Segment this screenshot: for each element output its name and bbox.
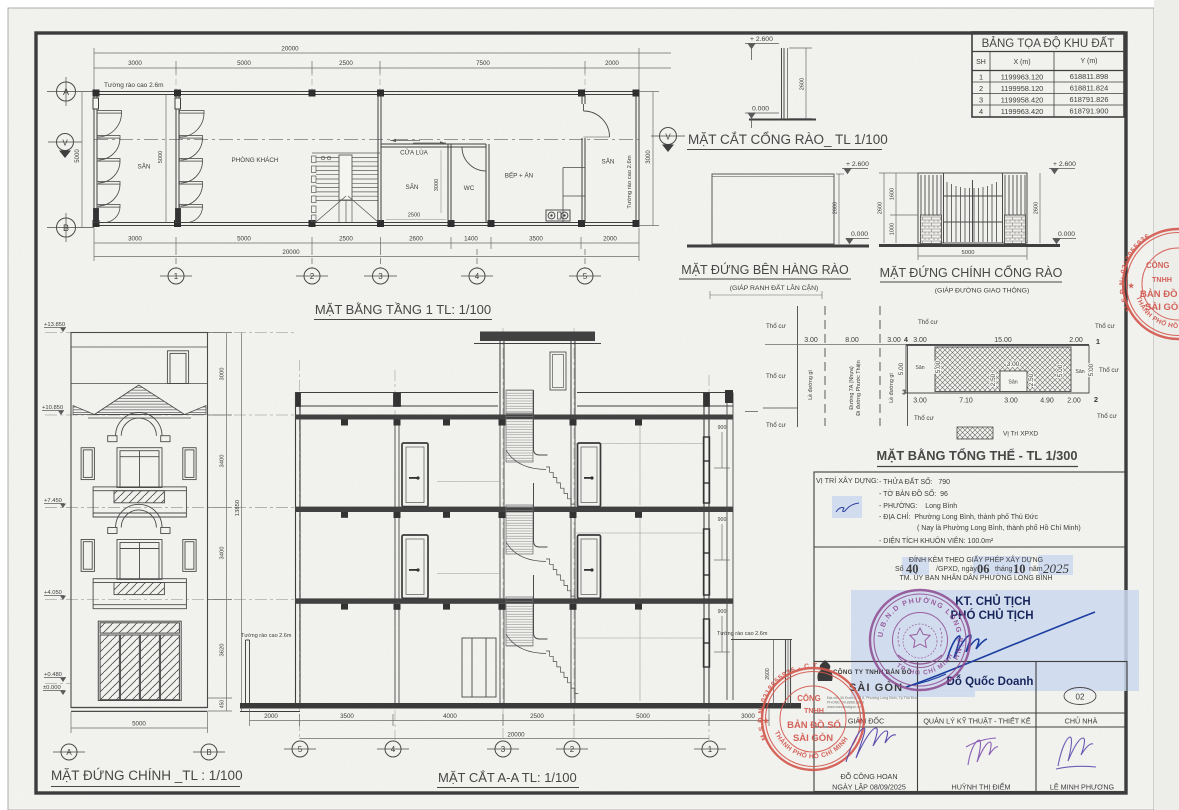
svg-text:20000: 20000 bbox=[281, 46, 299, 53]
svg-text:5.00: 5.00 bbox=[1088, 363, 1095, 376]
svg-text:5.00: 5.00 bbox=[935, 360, 942, 373]
svg-text:TNHH: TNHH bbox=[804, 706, 824, 715]
svg-text:2600: 2600 bbox=[800, 78, 806, 90]
svg-text:LÊ MINH PHƯƠNG: LÊ MINH PHƯƠNG bbox=[1050, 783, 1115, 792]
svg-text:3.00: 3.00 bbox=[887, 337, 901, 344]
svg-text:Sân: Sân bbox=[1008, 380, 1017, 386]
svg-text:- DIỆN TÍCH KHUÔN VIÊN: 100.0m: - DIỆN TÍCH KHUÔN VIÊN: 100.0m² bbox=[879, 536, 994, 545]
svg-text:ĐỖ CÔNG HOAN: ĐỖ CÔNG HOAN bbox=[840, 772, 897, 781]
svg-text:3000: 3000 bbox=[434, 179, 440, 191]
svg-text:CHỦ NHÀ: CHỦ NHÀ bbox=[1065, 717, 1098, 726]
svg-text:★: ★ bbox=[763, 717, 770, 725]
svg-text:MẶT ĐỨNG CHÍNH CỔNG RÀO: MẶT ĐỨNG CHÍNH CỔNG RÀO bbox=[880, 265, 1063, 280]
svg-text:5000: 5000 bbox=[237, 236, 251, 243]
svg-text:1000: 1000 bbox=[890, 223, 896, 235]
svg-text:V: V bbox=[665, 133, 671, 142]
svg-text:MẶT CẮT A-A TL: 1/100: MẶT CẮT A-A TL: 1/100 bbox=[438, 770, 577, 785]
svg-text:3: 3 bbox=[378, 272, 383, 281]
svg-text:3000: 3000 bbox=[220, 368, 226, 381]
svg-text:2600: 2600 bbox=[878, 202, 884, 214]
svg-text:CÔNG: CÔNG bbox=[797, 694, 820, 703]
svg-text:A: A bbox=[66, 748, 72, 757]
svg-text:4: 4 bbox=[391, 745, 396, 754]
svg-text:Đường 7A (Nhựa): Đường 7A (Nhựa) bbox=[849, 366, 855, 410]
svg-text:5.00: 5.00 bbox=[1057, 364, 1064, 377]
svg-text:Đi đường Phước Thiện: Đi đường Phước Thiện bbox=[856, 360, 862, 416]
svg-text:Sân: Sân bbox=[915, 365, 924, 371]
svg-text:5.00: 5.00 bbox=[898, 362, 905, 375]
svg-text:2600: 2600 bbox=[765, 668, 771, 680]
svg-text:- ĐỊA CHỈ: Phường Long Bình,: - ĐỊA CHỈ: Phường Long Bình, thành phố T… bbox=[879, 512, 1038, 521]
svg-text:Y (m): Y (m) bbox=[1081, 58, 1098, 65]
svg-text:618811.898: 618811.898 bbox=[1070, 72, 1109, 81]
svg-text:5000: 5000 bbox=[132, 721, 146, 728]
svg-text:TM. ỦY BAN NHÂN DÂN PHƯỜNG LON: TM. ỦY BAN NHÂN DÂN PHƯỜNG LONG BÌNH bbox=[899, 573, 1052, 582]
svg-text:SH: SH bbox=[976, 59, 986, 66]
svg-text:Thổ cư: Thổ cư bbox=[918, 319, 938, 326]
svg-text:+ 2.600: + 2.600 bbox=[1053, 161, 1076, 168]
svg-text:MẶT CẮT CỔNG RÀO_ TL 1/100: MẶT CẮT CỔNG RÀO_ TL 1/100 bbox=[688, 132, 888, 147]
svg-text:★: ★ bbox=[857, 717, 864, 725]
svg-text:5: 5 bbox=[298, 745, 303, 754]
svg-text:SÂN: SÂN bbox=[406, 182, 419, 191]
svg-text:VỊ TRÍ XÂY DỰNG:: VỊ TRÍ XÂY DỰNG: bbox=[816, 476, 879, 485]
svg-text:2025: 2025 bbox=[1043, 561, 1070, 576]
svg-text:5000: 5000 bbox=[237, 60, 251, 67]
svg-text:V: V bbox=[62, 139, 68, 148]
svg-text:3000: 3000 bbox=[128, 236, 142, 243]
svg-text:3.00: 3.00 bbox=[913, 337, 927, 344]
svg-text:1400: 1400 bbox=[464, 236, 478, 243]
svg-text:1: 1 bbox=[174, 272, 179, 281]
svg-text:618791.826: 618791.826 bbox=[1069, 95, 1108, 104]
svg-text:3500: 3500 bbox=[529, 236, 543, 243]
svg-text:(GIÁP ĐƯỜNG GIAO THÔNG): (GIÁP ĐƯỜNG GIAO THÔNG) bbox=[935, 286, 1029, 295]
svg-text:QUẢN LÝ KỸ THUẬT - THIẾT KẾ: QUẢN LÝ KỸ THUẬT - THIẾT KẾ bbox=[923, 716, 1031, 726]
svg-text:2500: 2500 bbox=[339, 236, 353, 243]
svg-text:Tường rào cao 2.6m: Tường rào cao 2.6m bbox=[241, 633, 292, 639]
svg-text:X (m): X (m) bbox=[1013, 59, 1030, 66]
svg-text:2500: 2500 bbox=[339, 60, 353, 67]
svg-text:2600: 2600 bbox=[409, 236, 423, 243]
svg-text:1600: 1600 bbox=[890, 188, 896, 200]
svg-text:20000: 20000 bbox=[507, 732, 525, 739]
svg-text:2.00: 2.00 bbox=[1067, 398, 1081, 405]
svg-text:Thổ cư: Thổ cư bbox=[1099, 367, 1119, 374]
svg-text:450: 450 bbox=[220, 700, 226, 709]
svg-text:MẶT ĐỨNG BÊN HÀNG RÀO: MẶT ĐỨNG BÊN HÀNG RÀO bbox=[681, 262, 849, 277]
svg-text:tháng: tháng bbox=[995, 566, 1013, 573]
svg-text:MẶT BẰNG TẦNG 1 TL: 1/100: MẶT BẰNG TẦNG 1 TL: 1/100 bbox=[315, 302, 491, 317]
svg-text:4: 4 bbox=[475, 272, 480, 281]
svg-text:★: ★ bbox=[1128, 282, 1135, 290]
svg-text:Địa chỉ: 30 Đường số 8, Phường: Địa chỉ: 30 Đường số 8, Phường Long Bình… bbox=[827, 696, 918, 700]
svg-text:3000: 3000 bbox=[646, 150, 652, 164]
svg-text:2500: 2500 bbox=[408, 213, 420, 219]
svg-text:1199958.420: 1199958.420 bbox=[1001, 96, 1044, 105]
svg-text:2000: 2000 bbox=[603, 236, 617, 243]
svg-text:SÂN: SÂN bbox=[602, 157, 615, 166]
svg-text:3620: 3620 bbox=[220, 644, 226, 657]
svg-text:2.50: 2.50 bbox=[990, 373, 997, 386]
svg-text:5000: 5000 bbox=[636, 713, 650, 720]
svg-text:Thổ cư: Thổ cư bbox=[1097, 413, 1117, 420]
svg-text:13850: 13850 bbox=[235, 500, 241, 516]
svg-text:3.00: 3.00 bbox=[1007, 361, 1020, 368]
svg-text:KT. CHỦ TỊCH: KT. CHỦ TỊCH bbox=[955, 595, 1030, 608]
svg-text:Tường rào cao 2.6m: Tường rào cao 2.6m bbox=[627, 155, 633, 208]
svg-text:1199963.120: 1199963.120 bbox=[1001, 73, 1044, 82]
svg-text:40: 40 bbox=[906, 562, 919, 576]
svg-text:B: B bbox=[206, 748, 211, 757]
svg-text:năm: năm bbox=[1029, 566, 1043, 573]
svg-text:2000: 2000 bbox=[605, 60, 619, 67]
svg-text:2000: 2000 bbox=[264, 713, 278, 720]
svg-text:4.90: 4.90 bbox=[1040, 398, 1054, 405]
svg-text:02: 02 bbox=[1076, 693, 1085, 702]
svg-text:MẶT ĐỨNG CHÍNH _TL : 1/100: MẶT ĐỨNG CHÍNH _TL : 1/100 bbox=[51, 768, 243, 783]
svg-text:BẢNG TỌA ĐỘ KHU ĐẤT: BẢNG TỌA ĐỘ KHU ĐẤT bbox=[982, 37, 1115, 50]
svg-text:PHÒNG KHÁCH: PHÒNG KHÁCH bbox=[232, 155, 279, 164]
svg-text:+4.050: +4.050 bbox=[44, 590, 62, 596]
svg-text:Vị Trí XPXD: Vị Trí XPXD bbox=[1003, 431, 1038, 438]
svg-text:+0.480: +0.480 bbox=[44, 672, 62, 678]
svg-text:Thổ cư: Thổ cư bbox=[766, 323, 786, 330]
svg-text:+13.850: +13.850 bbox=[44, 322, 65, 328]
svg-text:Thổ cư: Thổ cư bbox=[766, 373, 786, 380]
svg-text:Đỗ Quốc Doanh: Đỗ Quốc Doanh bbox=[947, 675, 1034, 688]
svg-text:SÀI GÒN: SÀI GÒN bbox=[793, 732, 833, 744]
svg-text:GIÁM ĐỐC: GIÁM ĐỐC bbox=[848, 716, 884, 726]
svg-text:0.000: 0.000 bbox=[752, 106, 769, 113]
svg-text:0.000: 0.000 bbox=[1058, 231, 1075, 238]
svg-text:1: 1 bbox=[1096, 337, 1100, 346]
svg-text:618811.824: 618811.824 bbox=[1070, 84, 1109, 93]
svg-text:1: 1 bbox=[979, 73, 983, 82]
svg-text:900: 900 bbox=[718, 609, 727, 615]
svg-text:WC: WC bbox=[464, 185, 475, 192]
svg-text:/GPXD, ngày: /GPXD, ngày bbox=[936, 566, 977, 573]
svg-text:Thổ cư: Thổ cư bbox=[766, 422, 786, 429]
svg-text:2: 2 bbox=[570, 745, 575, 754]
svg-text:HUỲNH THỊ ĐIỂM: HUỲNH THỊ ĐIỂM bbox=[952, 783, 1011, 792]
svg-text:±0.000: ±0.000 bbox=[43, 685, 61, 691]
svg-text:NGÀY LẬP 08/09/2025: NGÀY LẬP 08/09/2025 bbox=[832, 783, 906, 792]
svg-text:CỬA LÙA: CỬA LÙA bbox=[400, 148, 429, 157]
svg-text:4: 4 bbox=[979, 107, 983, 116]
svg-text:A: A bbox=[63, 87, 69, 97]
svg-text:5: 5 bbox=[583, 272, 588, 281]
svg-text:Lề đường gì: Lề đường gì bbox=[889, 373, 895, 403]
svg-text:+7.450: +7.450 bbox=[44, 498, 62, 504]
svg-text:15.00: 15.00 bbox=[994, 337, 1012, 344]
svg-text:618791.900: 618791.900 bbox=[1069, 107, 1108, 116]
svg-text:4000: 4000 bbox=[443, 713, 457, 720]
svg-text:+ 2.600: + 2.600 bbox=[846, 161, 869, 168]
svg-text:2.50: 2.50 bbox=[1028, 373, 1035, 386]
svg-text:3: 3 bbox=[501, 745, 506, 754]
svg-text:SÂN: SÂN bbox=[138, 162, 151, 171]
svg-text:B: B bbox=[63, 223, 69, 233]
svg-text:7500: 7500 bbox=[476, 60, 490, 67]
svg-text:( Nay là Phường Long Bình, thà: ( Nay là Phường Long Bình, thành phố Hồ … bbox=[917, 523, 1081, 532]
svg-text:5000: 5000 bbox=[75, 149, 81, 163]
svg-text:3400: 3400 bbox=[220, 455, 226, 468]
svg-text:3: 3 bbox=[979, 96, 983, 105]
svg-text:3.00: 3.00 bbox=[1004, 398, 1018, 405]
svg-text:- PHƯỜNG: Long Bình: - PHƯỜNG: Long Bình bbox=[879, 501, 957, 510]
svg-text:3500: 3500 bbox=[340, 713, 354, 720]
svg-text:2600: 2600 bbox=[1034, 202, 1040, 214]
svg-text:TNHH: TNHH bbox=[1152, 275, 1172, 284]
svg-text:Tường rào cao 2.6m: Tường rào cao 2.6m bbox=[104, 82, 164, 89]
svg-text:BẢN ĐỒ: BẢN ĐỒ bbox=[1140, 288, 1177, 300]
svg-text:1199958.120: 1199958.120 bbox=[1001, 84, 1044, 93]
svg-text:10: 10 bbox=[1013, 562, 1026, 576]
svg-text:20000: 20000 bbox=[282, 249, 300, 256]
svg-text:2: 2 bbox=[1094, 395, 1098, 404]
svg-text:1199963.420: 1199963.420 bbox=[1001, 107, 1044, 116]
svg-text:BẢN ĐỒ SỐ: BẢN ĐỒ SỐ bbox=[787, 719, 841, 731]
svg-text:2: 2 bbox=[310, 272, 315, 281]
svg-text:8.00: 8.00 bbox=[845, 337, 859, 344]
svg-text:CÔNG: CÔNG bbox=[1146, 261, 1169, 270]
svg-text:0.000: 0.000 bbox=[851, 231, 868, 238]
svg-text:Lề đường gì: Lề đường gì bbox=[808, 370, 814, 400]
svg-text:900: 900 bbox=[718, 425, 727, 431]
svg-text:7.10: 7.10 bbox=[959, 398, 973, 405]
svg-text:3: 3 bbox=[902, 390, 906, 397]
svg-text:Thổ cư: Thổ cư bbox=[914, 415, 934, 422]
svg-text:Tường rào cao 2.6m: Tường rào cao 2.6m bbox=[717, 631, 768, 637]
svg-text:SÀI GÒN: SÀI GÒN bbox=[1145, 301, 1179, 313]
svg-text:5000: 5000 bbox=[962, 250, 975, 256]
svg-text:3400: 3400 bbox=[220, 547, 226, 560]
svg-text:+ 2.600: + 2.600 bbox=[750, 36, 773, 43]
svg-text:4: 4 bbox=[904, 337, 908, 344]
svg-text:3000: 3000 bbox=[741, 713, 755, 720]
svg-text:2: 2 bbox=[979, 84, 983, 93]
svg-text:Sân: Sân bbox=[1075, 369, 1084, 375]
svg-text:3.00: 3.00 bbox=[804, 337, 818, 344]
svg-text:3000: 3000 bbox=[128, 60, 142, 67]
svg-text:3.00: 3.00 bbox=[913, 398, 927, 405]
svg-text:2.00: 2.00 bbox=[1069, 337, 1083, 344]
svg-text:Số: Số bbox=[895, 564, 904, 573]
svg-text:2600: 2600 bbox=[833, 202, 839, 214]
svg-text:06: 06 bbox=[977, 562, 990, 576]
svg-text:Thổ cư: Thổ cư bbox=[1095, 323, 1115, 330]
svg-text:900: 900 bbox=[718, 517, 727, 523]
svg-text:5000: 5000 bbox=[158, 151, 164, 163]
svg-text:MẶT BẰNG TỔNG THỂ - TL 1/300: MẶT BẰNG TỔNG THỂ - TL 1/300 bbox=[877, 448, 1078, 463]
svg-text:+10.850: +10.850 bbox=[42, 405, 63, 411]
svg-text:2500: 2500 bbox=[530, 713, 544, 720]
svg-text:1: 1 bbox=[708, 745, 713, 754]
